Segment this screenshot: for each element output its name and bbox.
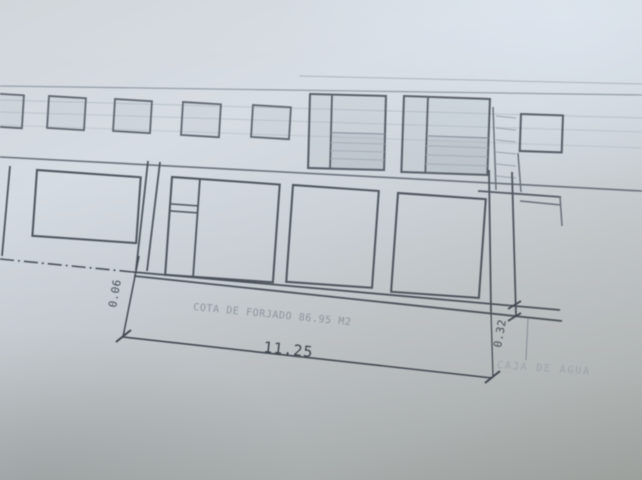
- note-leader-line: [526, 318, 528, 360]
- small-window-2: [113, 99, 152, 133]
- band-divider: [493, 107, 496, 190]
- room-2-shelf: [170, 211, 198, 213]
- paper-photo: 11.25 0.06 0.32 COTA DE FORJADO 86.95 M2…: [0, 0, 642, 480]
- room-rect-3: [286, 185, 379, 288]
- hatch-tick: [496, 116, 516, 118]
- dim-ext-left: [123, 256, 139, 337]
- dim-slab-edge-label: 0.32: [491, 318, 509, 348]
- small-window-0: [0, 93, 24, 128]
- band-top-faint-line: [300, 76, 642, 84]
- paned-window-1: [308, 94, 386, 170]
- blueprint-drawing: 11.25 0.06 0.32 COTA DE FORJADO 86.95 M2…: [0, 0, 642, 480]
- room-rect-4: [391, 193, 486, 298]
- hatch-tick: [496, 140, 516, 142]
- room-rect-2: [165, 177, 280, 282]
- slab-bottom-line: [134, 276, 562, 321]
- small-right-square: [520, 114, 563, 152]
- paned-window-2: [401, 96, 490, 175]
- hatch-tick: [496, 164, 516, 166]
- square-drop-line: [518, 153, 521, 192]
- corner-note-label: CAJA DE AGUA: [497, 360, 591, 378]
- slab-note-label: COTA DE FORJADO 86.95 M2: [193, 302, 352, 328]
- room-2-divider: [193, 179, 200, 277]
- baseline-dashdot: [0, 259, 133, 272]
- dim-left-offset-label: 0.06: [106, 278, 124, 308]
- lower-row: [2, 161, 516, 316]
- small-window-1: [47, 96, 86, 130]
- dim-total-width-label: 11.25: [263, 338, 315, 361]
- left-edge-line: [2, 166, 10, 256]
- room-2-shelf: [170, 204, 198, 206]
- small-window-4: [251, 105, 291, 139]
- notch-top-line: [478, 191, 561, 197]
- notch-bottom-line: [520, 201, 561, 205]
- hatch-tick: [496, 152, 516, 154]
- clerestory-squares: [0, 93, 291, 139]
- right-band-detail: [478, 107, 563, 226]
- notch-right-line: [560, 196, 562, 226]
- small-window-3: [181, 102, 221, 137]
- dimension-0-32: [508, 301, 528, 360]
- room-rect-1: [32, 170, 140, 243]
- wall-column-line: [147, 162, 160, 271]
